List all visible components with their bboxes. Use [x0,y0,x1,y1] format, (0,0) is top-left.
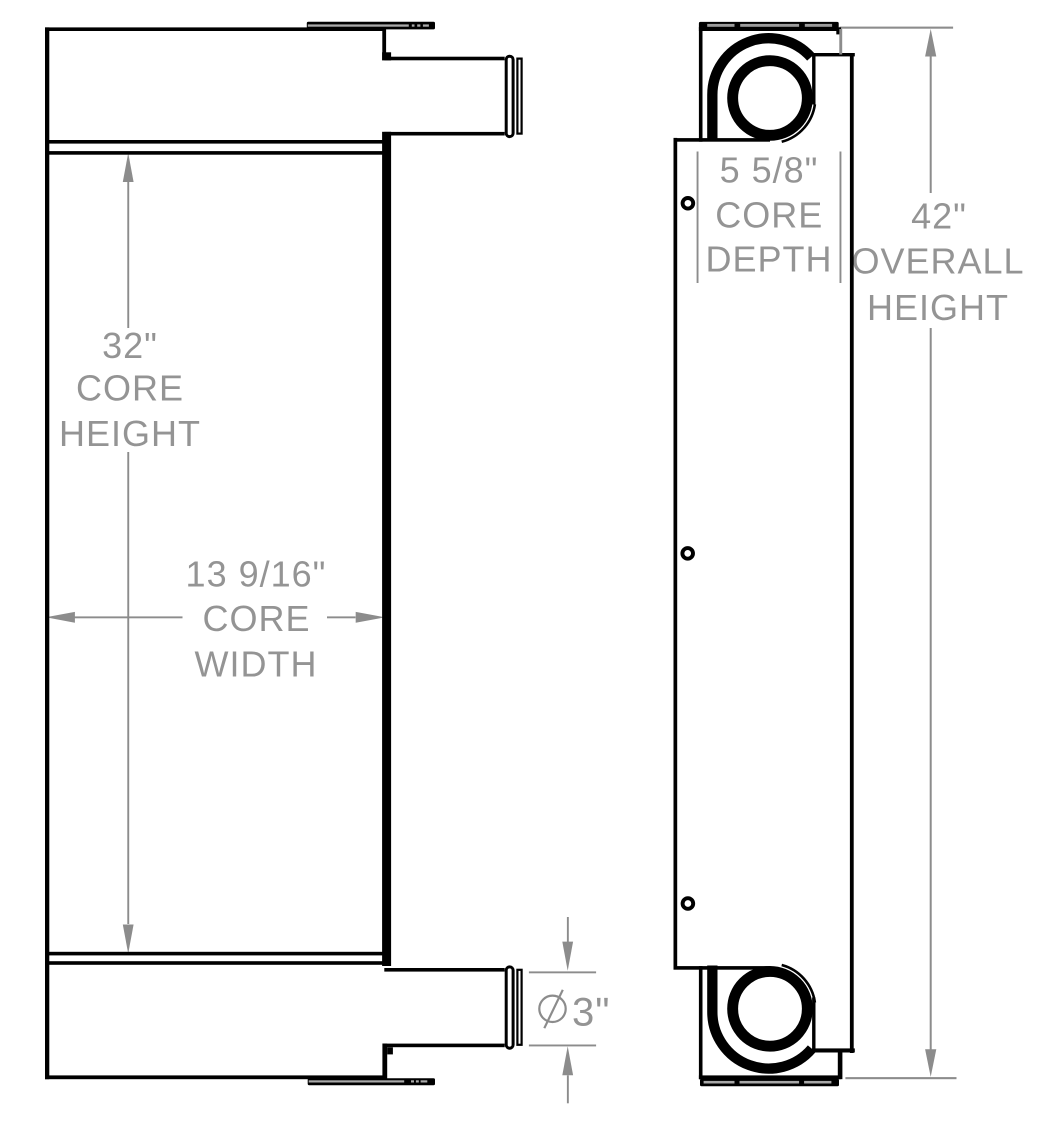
svg-text:DEPTH: DEPTH [705,238,832,279]
svg-text:CORE: CORE [76,367,184,408]
svg-text:42": 42" [911,195,967,236]
svg-text:WIDTH: WIDTH [195,643,318,684]
svg-text:5 5/8": 5 5/8" [720,149,819,190]
svg-text:OVERALL: OVERALL [851,241,1024,282]
svg-text:CORE: CORE [202,598,310,639]
svg-text:HEIGHT: HEIGHT [59,413,201,454]
svg-text:CORE: CORE [715,195,823,236]
svg-text:HEIGHT: HEIGHT [867,287,1009,328]
svg-text:32": 32" [102,325,158,366]
svg-text:13 9/16": 13 9/16" [186,554,327,595]
svg-text:3": 3" [572,990,610,1034]
